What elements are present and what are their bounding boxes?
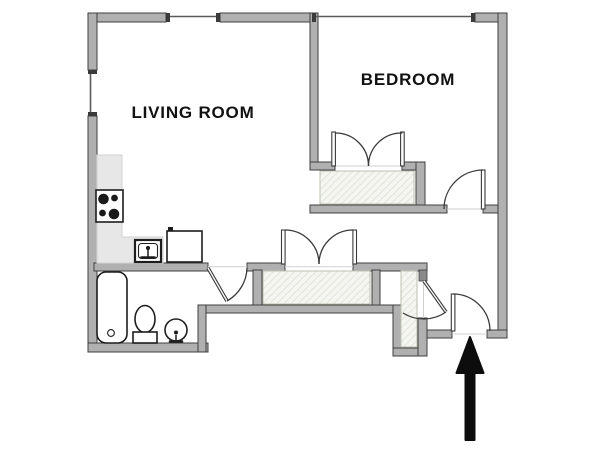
entry-bottom-wall-left <box>427 330 452 338</box>
hall-top-wall-right <box>353 263 427 271</box>
bathtub <box>97 272 127 343</box>
door-leaf <box>401 132 405 166</box>
toilet-bowl <box>135 306 155 333</box>
kitchen-bathroom-wall <box>94 263 208 271</box>
toilet <box>133 306 157 344</box>
bathroom <box>97 272 187 343</box>
window-cap <box>88 112 97 116</box>
window-left <box>88 70 97 116</box>
handle-icon <box>168 227 173 231</box>
window-cap <box>471 13 475 22</box>
door-leaf <box>481 170 485 209</box>
top-wall-left <box>88 13 166 22</box>
bedroom-closet-floor <box>320 171 414 204</box>
door-leaf <box>353 230 357 264</box>
bedroom-closet-double-door <box>332 132 404 166</box>
kitchen <box>96 155 202 263</box>
left-wall-upper <box>88 13 97 70</box>
window-cap <box>312 13 316 22</box>
pedestal-sink <box>165 319 187 342</box>
livingroom-bedroom-divider <box>310 13 318 170</box>
door-leaf <box>451 294 455 331</box>
entry-closet-floor <box>401 271 417 347</box>
door-leaf <box>282 230 286 264</box>
windows <box>88 13 475 116</box>
bedroom-door <box>444 170 485 209</box>
floor-plan: LIVING ROOM BEDROOM <box>0 0 600 450</box>
hall-closet-double-door <box>282 230 357 264</box>
door-leaf <box>332 132 336 166</box>
burner-icon <box>99 210 106 217</box>
burner-icon <box>98 194 109 205</box>
right-wall <box>498 13 507 337</box>
stove <box>96 190 123 222</box>
window-cap <box>166 13 170 22</box>
window-top-1 <box>166 13 220 22</box>
refrigerator <box>167 227 202 262</box>
entry-bottom-wall-right <box>487 330 507 338</box>
burner-icon <box>111 195 118 202</box>
walls <box>88 13 507 356</box>
entrance-door <box>451 294 490 331</box>
bedroom-label: BEDROOM <box>361 70 455 89</box>
floor-plan-canvas: LIVING ROOM BEDROOM <box>0 0 600 450</box>
left-wall-lower <box>88 116 97 352</box>
bathroom-right-wall <box>198 305 206 352</box>
toilet-tank <box>133 332 157 343</box>
bathroom-door <box>208 268 247 301</box>
window-top-2 <box>312 13 475 22</box>
window-cap <box>88 70 97 74</box>
top-wall-mid <box>220 13 312 22</box>
bedroom-bottom-wall <box>310 205 447 213</box>
entrance-arrow-icon <box>457 337 484 440</box>
bathroom-bottom-wall <box>88 343 208 352</box>
entry-closet-right-stub <box>418 318 427 356</box>
window-cap <box>216 13 220 22</box>
burner-icon <box>109 209 120 220</box>
living-room-label: LIVING ROOM <box>131 103 254 122</box>
entry-closet-door-jamb <box>419 270 427 281</box>
hall-closet-floor <box>263 271 370 304</box>
kitchen-sink <box>135 240 161 262</box>
hall-bottom-wall <box>198 305 401 313</box>
